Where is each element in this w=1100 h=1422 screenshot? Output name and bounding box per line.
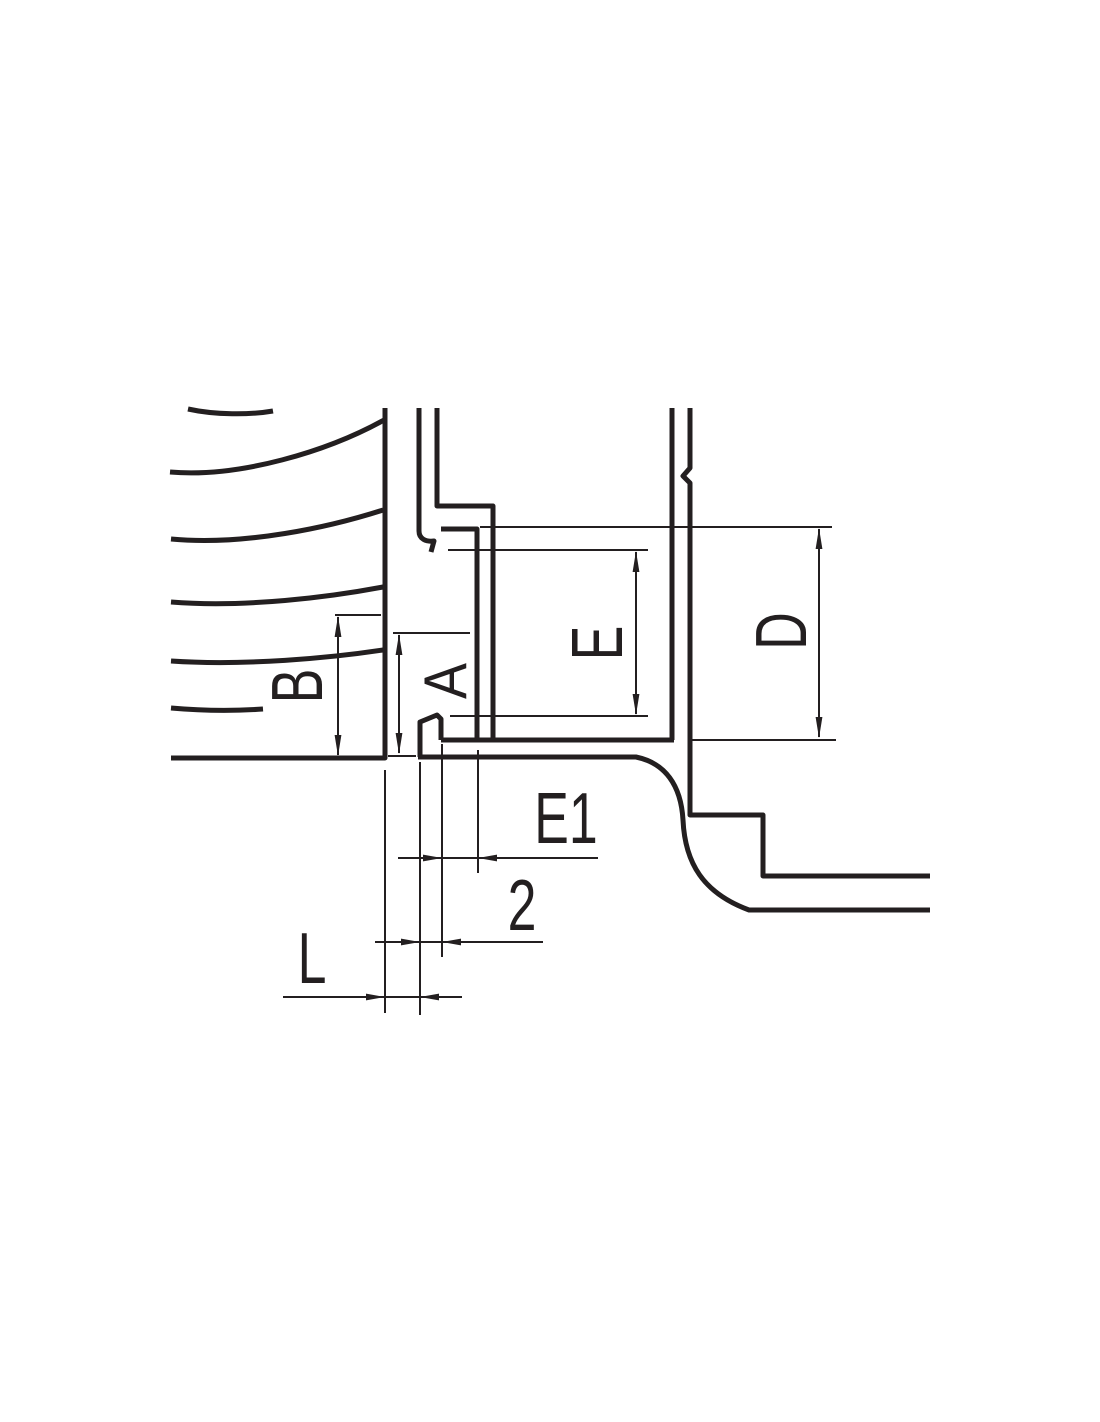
dim-label-d: D <box>742 612 822 649</box>
dimension-lines <box>283 527 836 1015</box>
dim-l-arrow-left <box>366 994 385 1001</box>
dim-e1-arrow-left <box>423 855 442 862</box>
dim-label-b: B <box>258 669 338 704</box>
cone-curve-1 <box>188 409 273 414</box>
inlet-ring-inner-edge <box>419 408 434 552</box>
drawing-page: B A E D E1 2 L <box>0 0 1100 1422</box>
sheet-bottom-and-funnel-bend <box>418 757 930 910</box>
dim-gap2-arrow-right <box>442 939 461 946</box>
dim-label-l: L <box>298 919 327 999</box>
dim-e-arrow-up <box>633 551 640 572</box>
sheet-hook-edge <box>420 715 441 757</box>
dim-label-gap2: 2 <box>508 866 537 946</box>
cone-curve-3 <box>171 510 383 540</box>
cone-curve-4 <box>171 587 383 604</box>
dim-l-arrow-right <box>420 994 439 1001</box>
dim-b-arrow-up <box>335 616 342 637</box>
dim-e-arrow-down <box>633 694 640 715</box>
arrowheads <box>335 528 823 1000</box>
cone-curve-6 <box>171 708 263 710</box>
dim-e1-arrow-right <box>478 855 497 862</box>
cone-curve-5 <box>171 650 383 663</box>
dim-d-arrow-up <box>816 528 823 549</box>
dim-a-arrow-down <box>396 733 403 754</box>
dim-gap2-arrow-left <box>401 939 420 946</box>
dim-d-arrow-down <box>816 717 823 738</box>
technical-drawing: B A E D E1 2 L <box>0 0 1100 1422</box>
dim-label-e1: E1 <box>534 779 597 859</box>
dim-label-e: E <box>558 626 638 661</box>
dim-a-arrow-up <box>396 634 403 655</box>
cone-curve-2 <box>170 420 384 473</box>
dim-b-arrow-down <box>335 735 342 756</box>
dim-label-a: A <box>412 663 479 699</box>
